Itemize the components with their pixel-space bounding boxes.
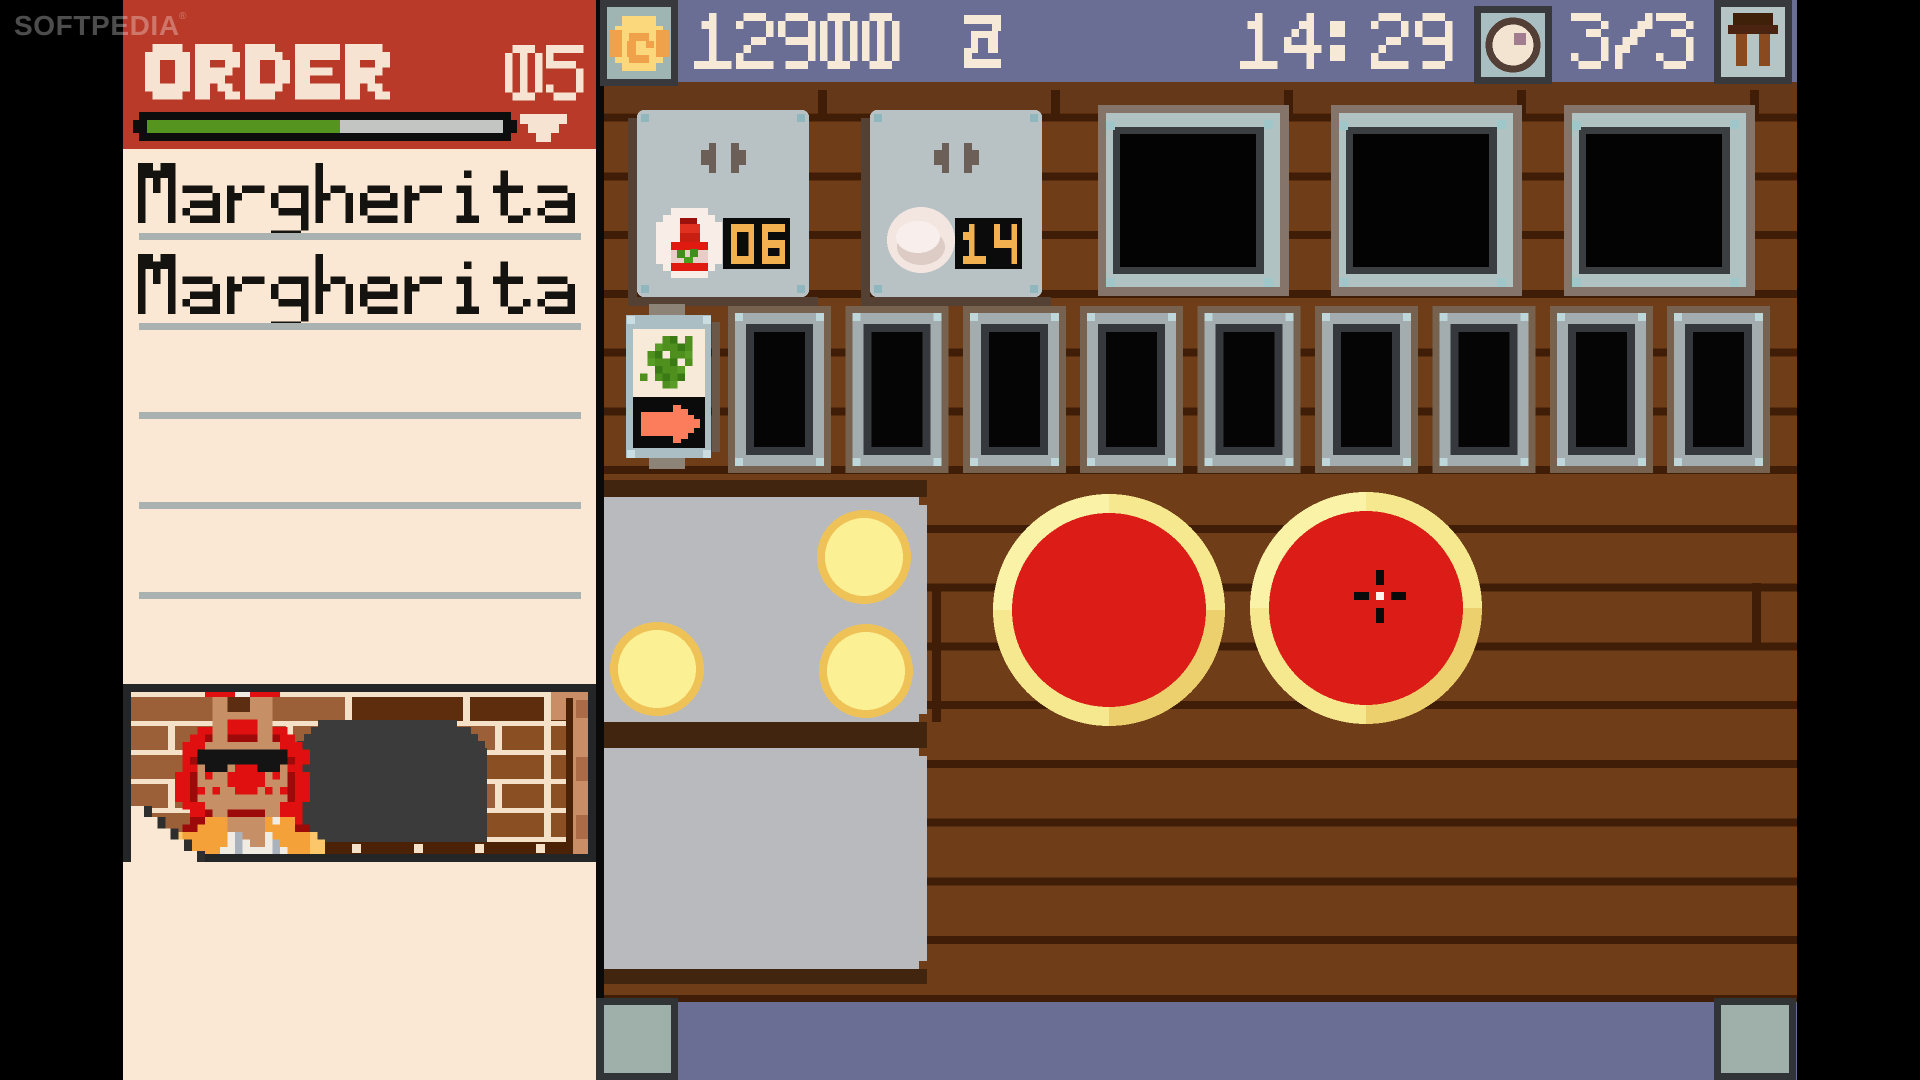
svg-text:SOFTPEDIA: SOFTPEDIA [14,10,180,41]
svg-text:®: ® [179,11,187,22]
